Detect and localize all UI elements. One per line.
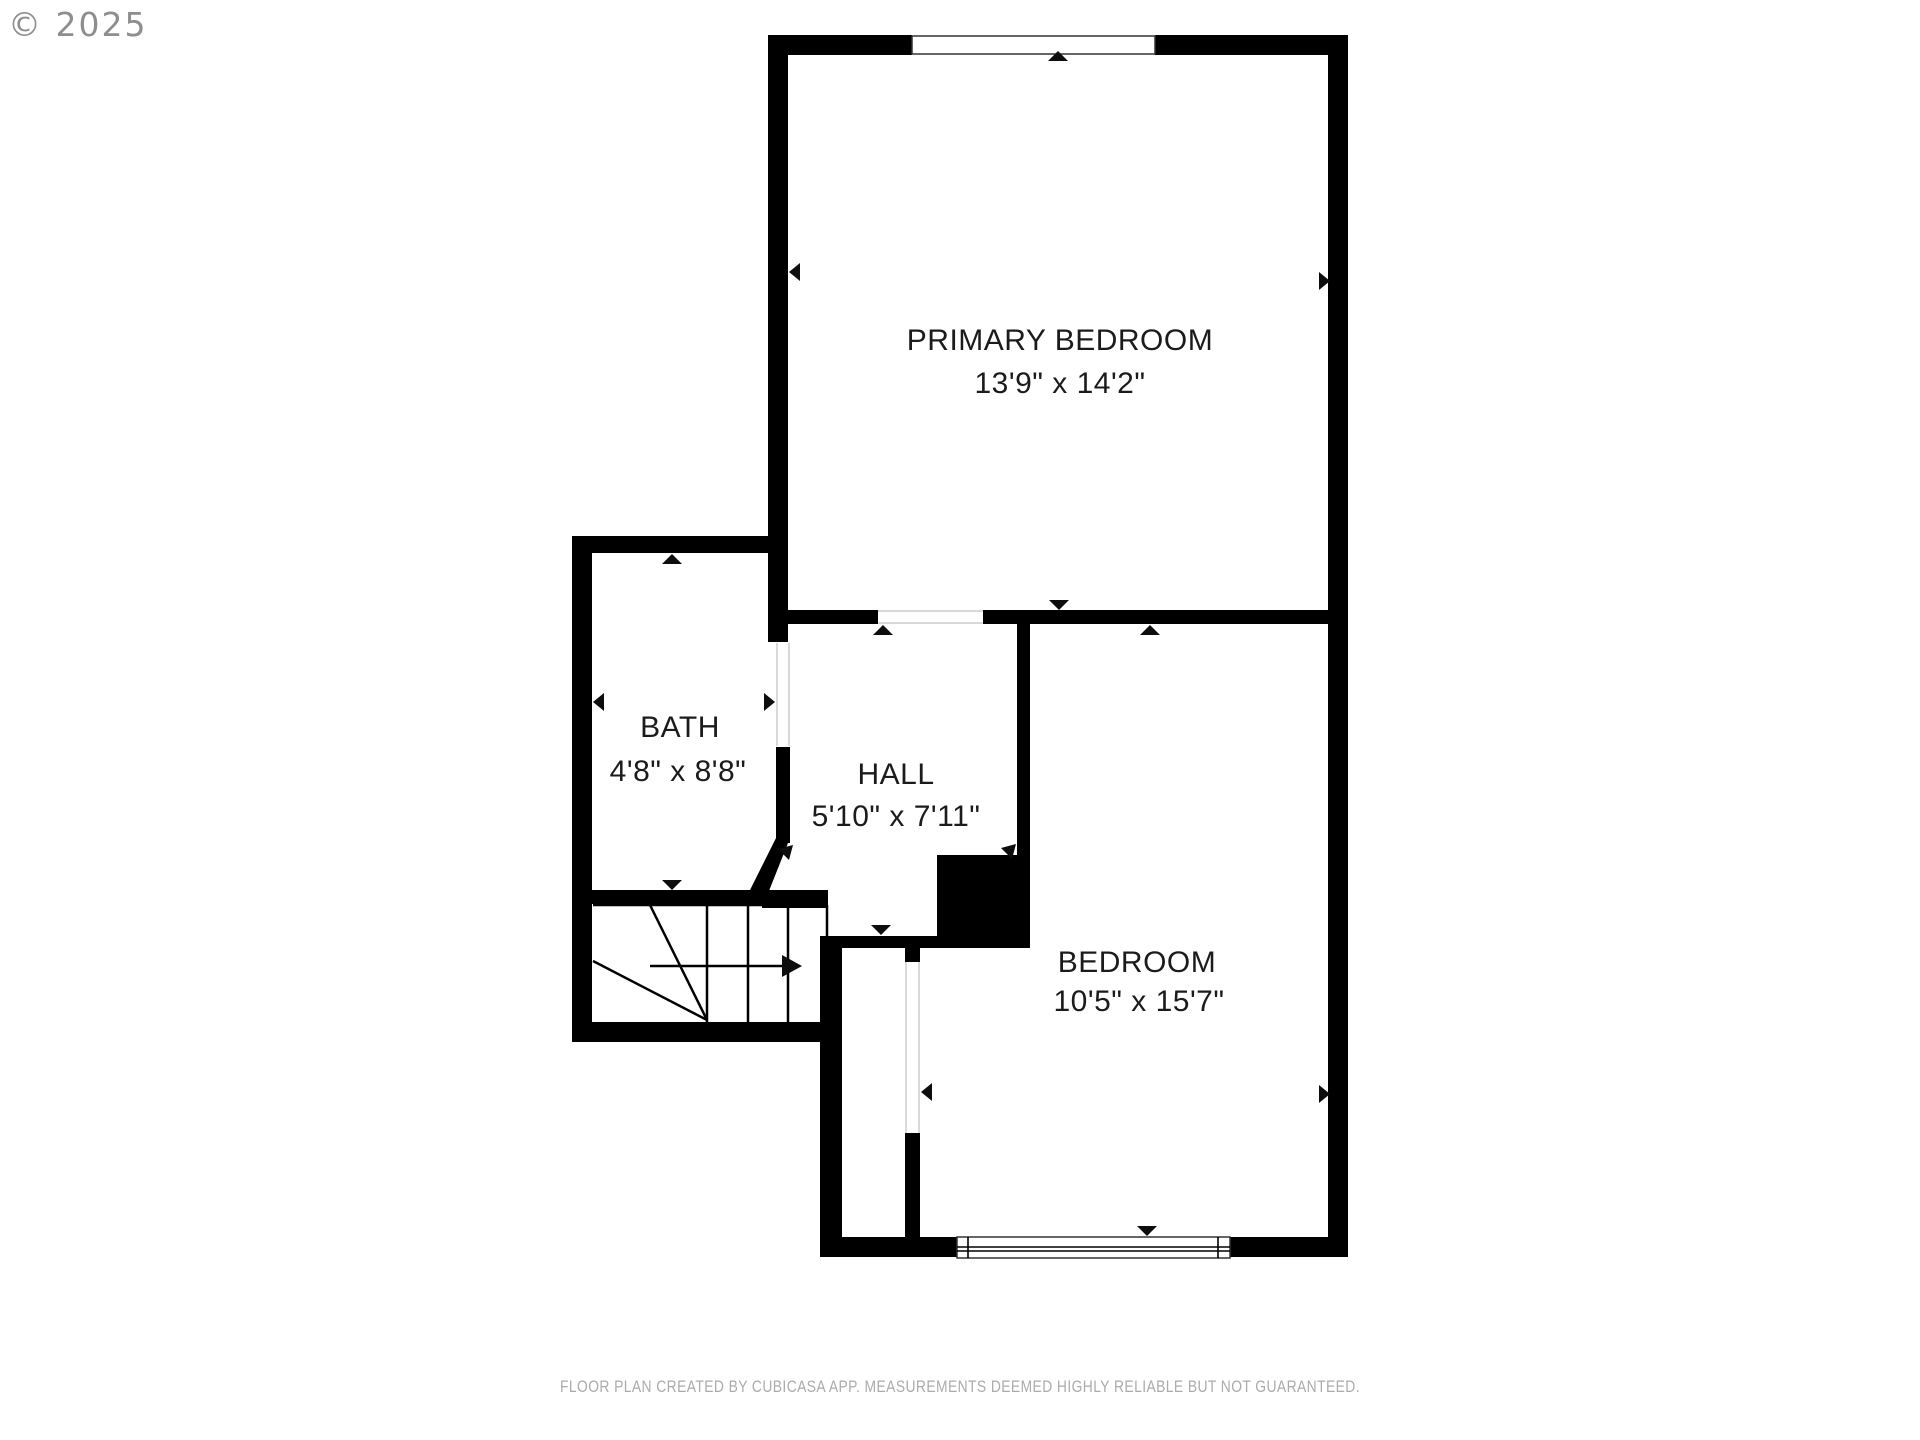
wall (572, 1022, 842, 1042)
room-dims-bedroom: 10'5" x 15'7" (1053, 985, 1224, 1018)
room-label-primary-bedroom: PRIMARY BEDROOM (907, 324, 1213, 357)
wall (1328, 35, 1348, 1257)
wall (572, 536, 788, 553)
room-label-hall: HALL (857, 758, 934, 791)
stair-winder-tread (593, 961, 707, 1020)
floor-plan-canvas: PRIMARY BEDROOM 13'9" x 14'2" BATH 4'8" … (0, 0, 1920, 1440)
arrow-up-icon (873, 625, 893, 635)
wall (820, 1237, 957, 1257)
room-labels: PRIMARY BEDROOM 13'9" x 14'2" BATH 4'8" … (610, 324, 1225, 1018)
wall (776, 610, 878, 624)
wall-block (937, 855, 1030, 948)
windows (912, 36, 1230, 1258)
floor-plan-page: PRIMARY BEDROOM 13'9" x 14'2" BATH 4'8" … (0, 0, 1920, 1440)
arrow-right-icon (764, 693, 775, 711)
arrow-down-icon (1137, 1226, 1157, 1236)
room-label-bath: BATH (640, 711, 720, 744)
wall (1230, 1237, 1348, 1257)
copyright-watermark: © 2025 (8, 5, 147, 44)
stair-winder-tread (650, 905, 707, 1020)
wall-stub (905, 1133, 920, 1237)
measurement-markers (593, 51, 1330, 1236)
walls (572, 35, 1348, 1257)
arrow-down-icon (662, 880, 682, 890)
room-dims-primary-bedroom: 13'9" x 14'2" (974, 367, 1145, 400)
room-dims-hall: 5'10" x 7'11" (812, 800, 981, 833)
wall (776, 747, 790, 843)
arrow-down-icon (1049, 600, 1069, 610)
arrow-left-icon (593, 693, 604, 711)
footer-disclaimer: FLOOR PLAN CREATED BY CUBICASA APP. MEAS… (560, 1377, 1360, 1396)
arrow-up-icon (1140, 625, 1160, 635)
wall (820, 936, 842, 1257)
wall (1017, 624, 1030, 855)
arrow-left-icon (921, 1083, 932, 1101)
room-dims-bath: 4'8" x 8'8" (610, 755, 747, 788)
wall (1155, 35, 1348, 55)
staircase (593, 905, 827, 1022)
wall-stub (905, 948, 920, 962)
wall (983, 610, 1328, 624)
wall (768, 35, 912, 55)
wall (826, 936, 937, 948)
wall (572, 536, 592, 1042)
arrow-left-icon (789, 263, 800, 281)
room-label-bedroom: BEDROOM (1058, 946, 1217, 979)
window (912, 36, 1155, 54)
stair-arrow-head-icon (782, 955, 802, 977)
arrow-down-icon (871, 925, 891, 935)
arrow-up-icon (662, 554, 682, 564)
